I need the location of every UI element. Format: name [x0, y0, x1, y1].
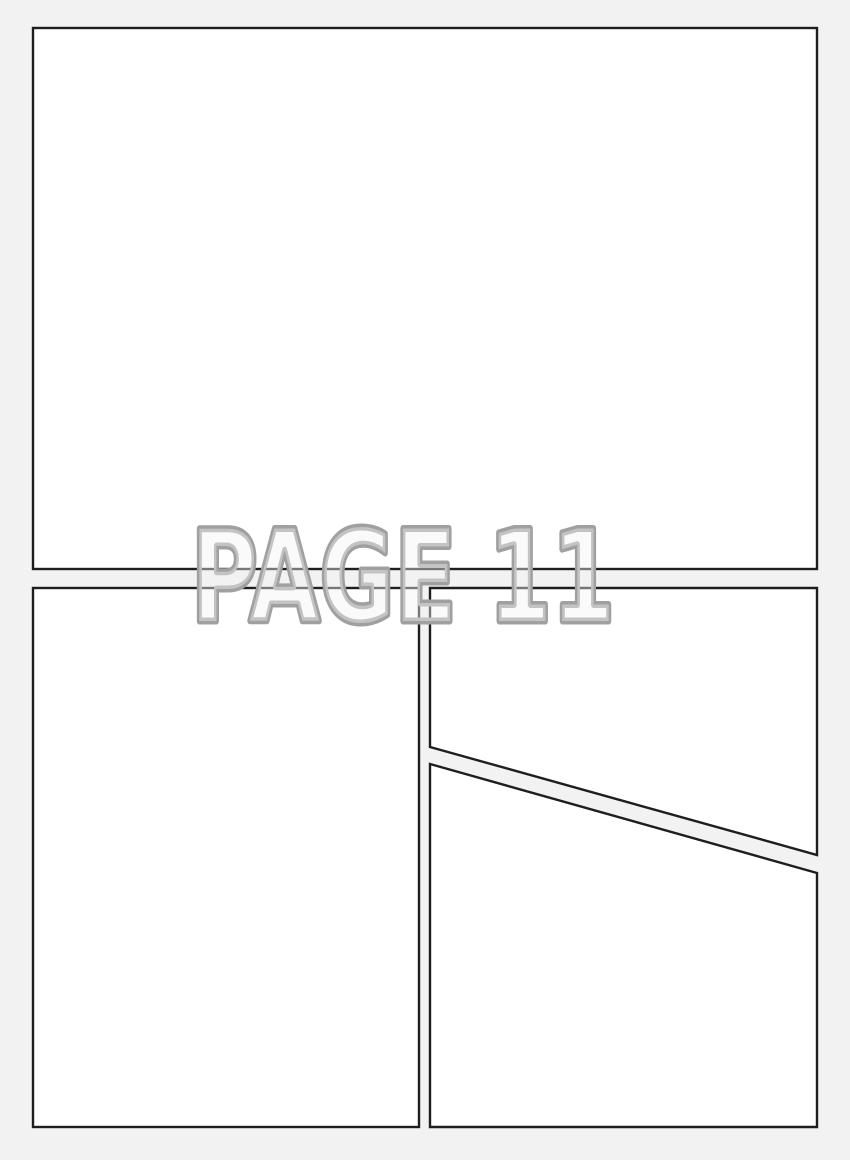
panel-grid: PAGE 11 [0, 0, 850, 1160]
panel-top [33, 28, 817, 569]
panel-bottom-left [33, 588, 419, 1127]
page-number-label: PAGE 11 [191, 503, 615, 651]
comic-page-template: PAGE 11 [0, 0, 850, 1160]
